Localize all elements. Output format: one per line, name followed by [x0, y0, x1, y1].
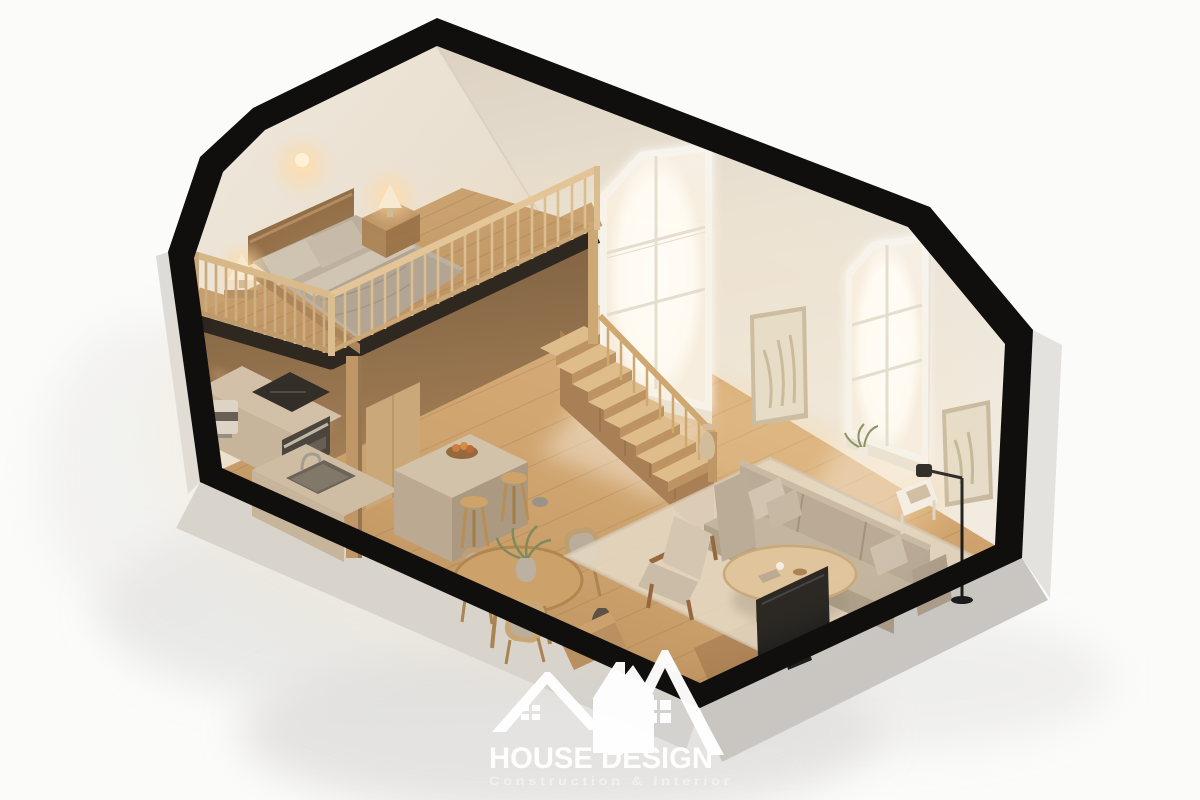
apartment-render-image: HOUSE DESIGN Construction & Interior [0, 0, 1200, 800]
lamp-base [951, 596, 973, 604]
wall-sconce [295, 153, 309, 167]
isometric-cutaway-svg: HOUSE DESIGN Construction & Interior [0, 0, 1200, 800]
watermark-brand-text: HOUSE DESIGN [489, 742, 713, 775]
watermark-tagline-text: Construction & Interior [489, 774, 733, 788]
